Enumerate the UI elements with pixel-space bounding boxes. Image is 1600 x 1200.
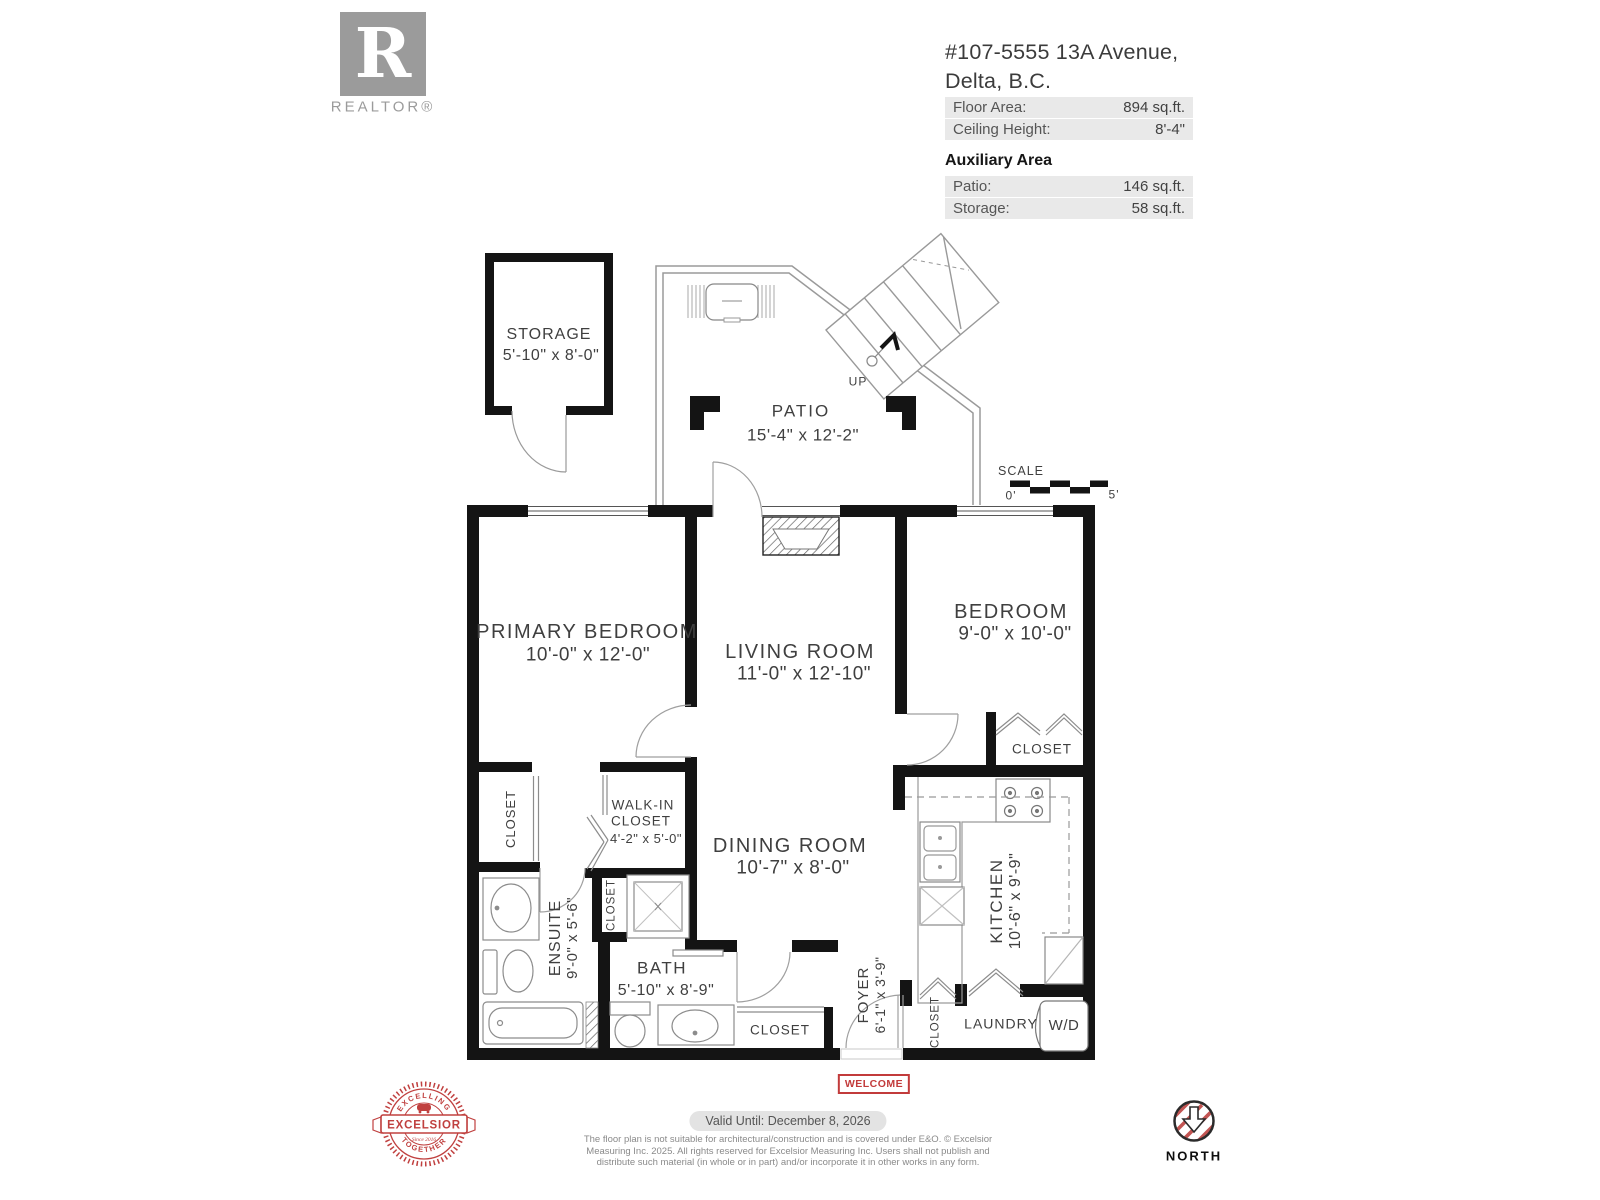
label-wd: W/D [1049, 1018, 1080, 1035]
label-primary-bedroom-dims: 10'-0" x 12'-0" [526, 646, 650, 667]
disclaimer-line3: distribute such material (in whole or in… [584, 1157, 992, 1169]
realtor-logo: R [340, 12, 426, 96]
label-closet-foyer: CLOSET [930, 996, 943, 1048]
area-info-table: Floor Area: 894 sq.ft. Ceiling Height: 8… [945, 97, 1193, 141]
floor-area-label: Floor Area: [953, 99, 1026, 116]
floor-area-row: Floor Area: 894 sq.ft. [945, 97, 1193, 118]
ceiling-height-value: 8'-4" [1155, 121, 1185, 138]
property-address: #107-5555 13A Avenue, Delta, B.C. [945, 38, 1178, 96]
label-closet-primary: CLOSET [504, 790, 518, 848]
badge-center-text: EXCELSIOR [387, 1120, 461, 1132]
patio-area-value: 146 sq.ft. [1123, 178, 1185, 195]
auxiliary-area-title: Auxiliary Area [945, 152, 1052, 170]
floorplan-drawing: EXCELLING TOGETHER EXCELSIOR Since 2016 [0, 0, 1600, 1200]
patio-area-label: Patio: [953, 178, 991, 195]
label-patio-dims: 15'-4" x 12'-2" [747, 427, 859, 446]
label-walkin-line2: CLOSET [611, 815, 671, 830]
ceiling-height-row: Ceiling Height: 8'-4" [945, 119, 1193, 140]
label-scale-five: 5' [1109, 488, 1120, 501]
label-scale-zero: 0' [1006, 489, 1017, 502]
shower [627, 875, 689, 938]
welcome-doormat: WELCOME [838, 1074, 910, 1094]
disclaimer-line2: Measuring Inc. 2025. All rights reserved… [584, 1145, 992, 1157]
label-walkin-dims: 4'-2" x 5'-0" [610, 832, 682, 846]
auxiliary-area-table: Patio: 146 sq.ft. Storage: 58 sq.ft. [945, 176, 1193, 220]
label-living-room: LIVING ROOM [725, 641, 875, 663]
tile-wall-hatch [586, 1002, 598, 1048]
disclaimer-text: The floor plan is not suitable for archi… [584, 1134, 992, 1169]
label-bedroom-dims: 9'-0" x 10'-0" [958, 625, 1071, 646]
floorplan-page: EXCELLING TOGETHER EXCELSIOR Since 2016 … [0, 0, 1600, 1200]
address-line1: #107-5555 13A Avenue, [945, 38, 1178, 67]
label-foyer-dims: 6'-1" x 3'-9" [873, 956, 888, 1033]
realtor-logo-letter: R [355, 20, 412, 88]
excelsior-badge-icon: EXCELLING TOGETHER EXCELSIOR Since 2016 [373, 1084, 475, 1164]
label-storage: STORAGE [507, 326, 592, 344]
label-foyer: FOYER 6'-1" x 3'-9" [856, 956, 888, 1033]
label-scale: SCALE [998, 465, 1044, 479]
north-label: NORTH [1166, 1149, 1222, 1164]
label-ensuite: ENSUITE 9'-0" x 5'-6" [547, 897, 581, 979]
windows [528, 507, 1053, 516]
label-bath: BATH [637, 960, 687, 979]
label-dining-room-dims: 10'-7" x 8'-0" [736, 859, 849, 880]
label-closet-hall: CLOSET [606, 879, 619, 931]
fireplace [763, 517, 839, 555]
label-foyer-name: FOYER [856, 956, 873, 1033]
label-storage-dims: 5'-10" x 8'-0" [503, 347, 600, 365]
label-bath-dims: 5'-10" x 8'-9" [618, 982, 715, 1000]
label-laundry: LAUNDRY [964, 1016, 1038, 1031]
label-ensuite-dims: 9'-0" x 5'-6" [565, 897, 582, 979]
label-living-room-dims: 11'-0" x 12'-10" [737, 665, 871, 686]
label-closet-bottom: CLOSET [750, 1024, 810, 1039]
label-dining-room: DINING ROOM [713, 835, 867, 857]
hot-tub [688, 284, 774, 322]
patio-area-row: Patio: 146 sq.ft. [945, 176, 1193, 197]
disclaimer-line1: The floor plan is not suitable for archi… [584, 1134, 992, 1146]
label-kitchen-dims: 10'-6" x 9'-9" [1007, 853, 1025, 950]
scale-bar [1010, 481, 1108, 494]
address-line2: Delta, B.C. [945, 67, 1178, 96]
ceiling-height-label: Ceiling Height: [953, 121, 1051, 138]
floor-area-value: 894 sq.ft. [1123, 99, 1185, 116]
label-ensuite-name: ENSUITE [547, 897, 565, 979]
storage-door [512, 411, 566, 472]
label-up: UP [849, 375, 868, 388]
label-bedroom: BEDROOM [954, 601, 1068, 623]
storage-area-row: Storage: 58 sq.ft. [945, 198, 1193, 219]
realtor-wordmark: REALTOR® [331, 99, 436, 116]
badge-since-text: Since 2016 [412, 1137, 437, 1143]
storage-area-value: 58 sq.ft. [1132, 200, 1185, 217]
label-kitchen-name: KITCHEN [988, 853, 1007, 950]
storage-area-label: Storage: [953, 200, 1010, 217]
label-primary-bedroom: PRIMARY BEDROOM [476, 621, 698, 643]
label-walkin-line1: WALK-IN [612, 799, 675, 814]
label-closet-bedroom: CLOSET [1012, 743, 1072, 758]
welcome-text: WELCOME [845, 1078, 903, 1090]
valid-until-badge: Valid Until: December 8, 2026 [689, 1111, 886, 1131]
label-patio: PATIO [772, 403, 831, 422]
label-kitchen: KITCHEN 10'-6" x 9'-9" [988, 853, 1024, 950]
